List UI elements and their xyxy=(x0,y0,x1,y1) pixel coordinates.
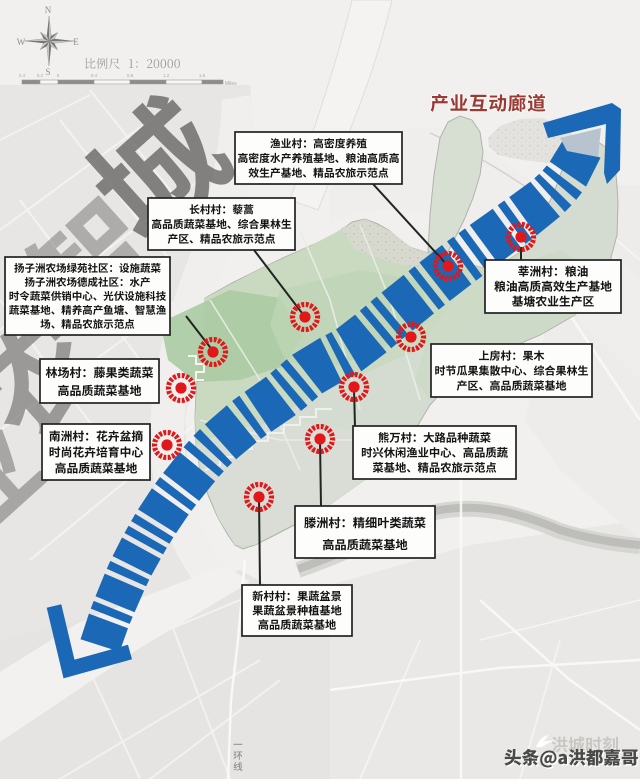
svg-text:S: S xyxy=(45,67,50,77)
svg-text:0.8: 0.8 xyxy=(127,73,134,78)
svg-text:0.4: 0.4 xyxy=(91,73,98,78)
svg-text:1.6: 1.6 xyxy=(199,73,206,78)
svg-text:Miles: Miles xyxy=(225,81,237,87)
svg-text:N: N xyxy=(45,5,52,15)
svg-text:0.4: 0.4 xyxy=(19,73,26,78)
svg-text:0.2: 0.2 xyxy=(37,73,44,78)
svg-text:1.2: 1.2 xyxy=(163,73,170,78)
svg-text:E: E xyxy=(73,37,79,47)
svg-text:W: W xyxy=(17,37,26,47)
